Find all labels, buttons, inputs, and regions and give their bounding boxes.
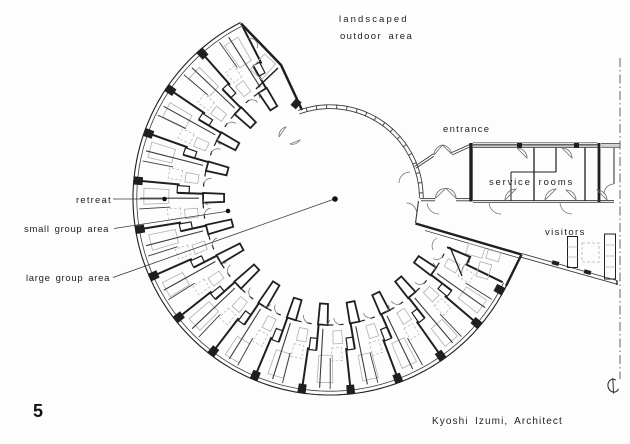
- svg-text:large group area: large group area: [26, 273, 110, 284]
- svg-text:visitors: visitors: [545, 227, 586, 238]
- svg-text:retreat: retreat: [76, 195, 112, 206]
- svg-text:service rooms: service rooms: [489, 177, 574, 188]
- svg-text:landscaped: landscaped: [339, 14, 409, 25]
- svg-text:outdoor area: outdoor area: [340, 31, 413, 42]
- svg-text:entrance: entrance: [443, 124, 490, 135]
- svg-text:5: 5: [33, 401, 43, 421]
- svg-text:Kyoshi Izumi, Architect: Kyoshi Izumi, Architect: [432, 416, 563, 427]
- svg-text:small group area: small group area: [24, 224, 109, 235]
